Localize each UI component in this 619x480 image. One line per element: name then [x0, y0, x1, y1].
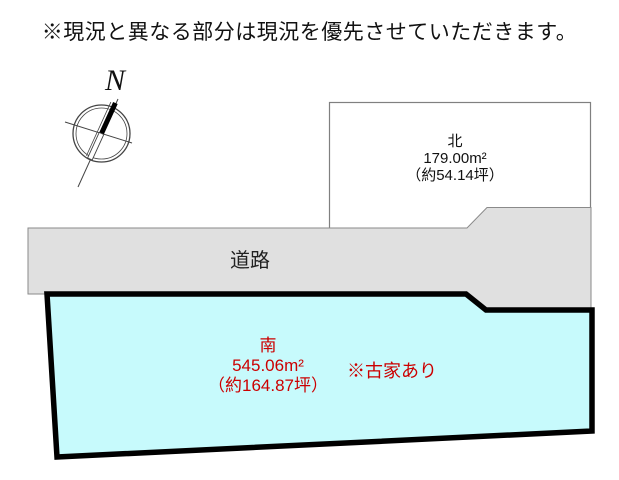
- compass-north-letter: N: [105, 66, 125, 96]
- compass-needle-edge-line: [86, 102, 110, 156]
- road-label: 道路: [190, 250, 310, 272]
- south-plot-area-tsubo: （約164.87坪）: [168, 376, 368, 396]
- disclaimer-title: ※現況と異なる部分は現況を優先させていただきます。: [0, 16, 619, 46]
- north-plot-area-tsubo: （約54.14坪）: [355, 167, 555, 184]
- compass-needle-south-half: [88, 132, 104, 160]
- north-plot-label: 北 179.00m² （約54.14坪）: [355, 133, 555, 184]
- compass-icon: [65, 99, 132, 187]
- south-plot-area-m2: 545.06m²: [168, 356, 368, 376]
- north-plot-area-m2: 179.00m²: [355, 150, 555, 167]
- plot-plan-svg: [0, 0, 619, 480]
- south-plot-label: 南 545.06m² （約164.87坪）: [168, 336, 368, 396]
- north-plot-name: 北: [355, 133, 555, 150]
- south-plot-name: 南: [168, 336, 368, 356]
- land-plot-diagram: ※現況と異なる部分は現況を優先させていただきます。 N 北 179.00m² （…: [0, 0, 619, 480]
- old-house-note: ※古家あり: [347, 357, 437, 383]
- compass-needle: [86, 101, 118, 160]
